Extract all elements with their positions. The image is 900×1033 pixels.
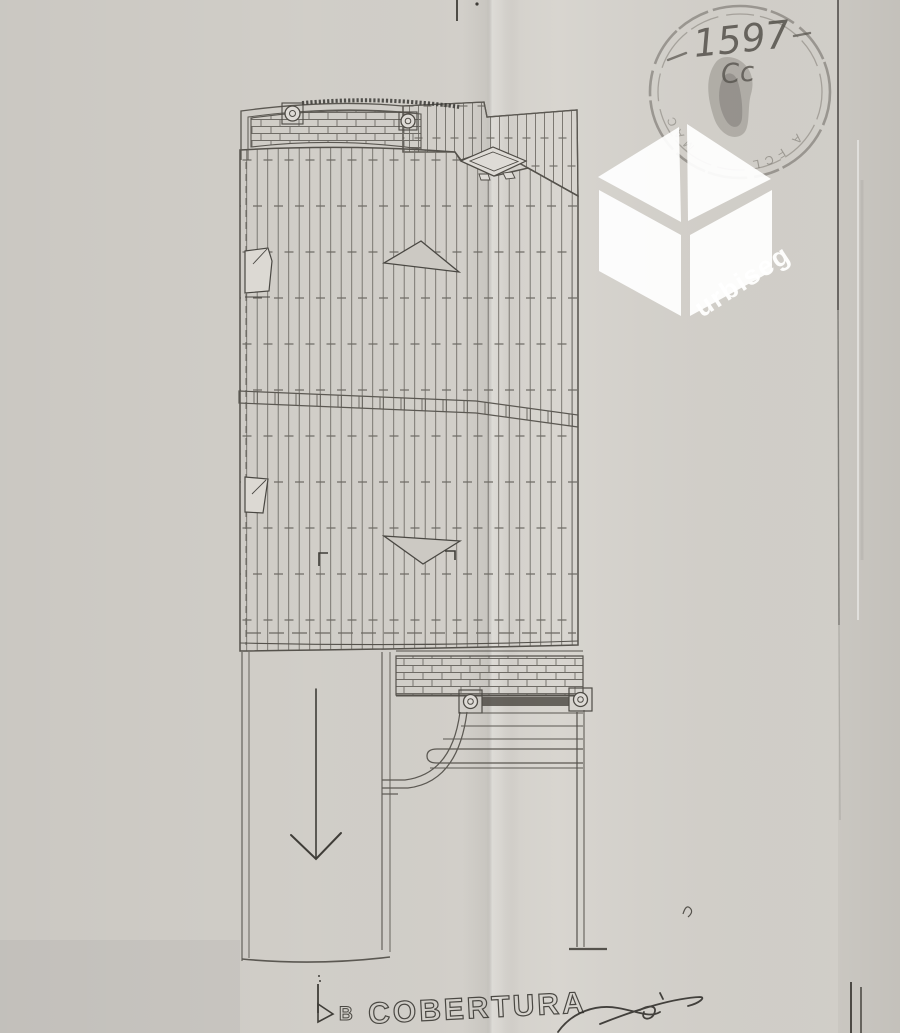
blueprint-scan: B COBERTURA 1597 Cc A FCL MAC <box>0 0 900 1033</box>
paper-shadow-bottom-left <box>0 940 240 1033</box>
lower-dark-rail <box>482 697 569 706</box>
roof-vent-1 <box>245 248 272 297</box>
scanned-blueprint-page: B COBERTURA 1597 Cc A FCL MAC <box>0 0 900 1033</box>
stamp-monogram: Cc <box>720 57 756 91</box>
paper-shadow-right <box>838 0 900 1033</box>
section-marker-letter: B <box>339 1004 353 1025</box>
